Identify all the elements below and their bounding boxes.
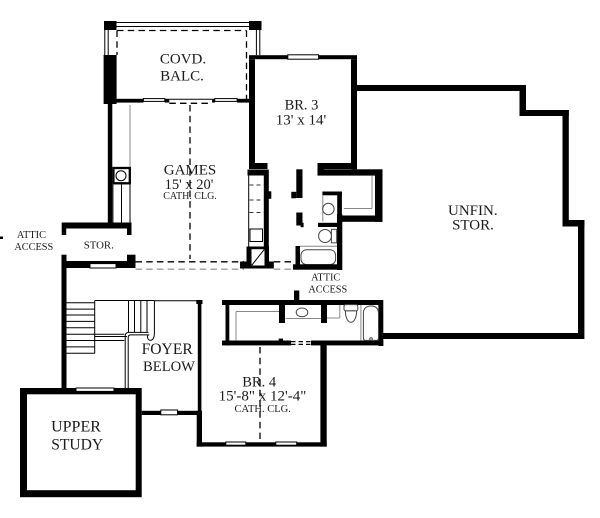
svg-text:STUDY: STUDY (51, 437, 103, 454)
svg-text:ATTIC: ATTIC (311, 273, 340, 284)
svg-text:UNFIN.: UNFIN. (448, 203, 498, 219)
svg-text:COVD.: COVD. (160, 52, 206, 68)
svg-text:CATH. CLG.: CATH. CLG. (235, 404, 291, 415)
svg-text:STOR.: STOR. (84, 239, 114, 251)
svg-text:ATTIC: ATTIC (17, 230, 46, 241)
svg-text:15'-8" x 12'-4": 15'-8" x 12'-4" (219, 388, 307, 404)
svg-text:STOR.: STOR. (452, 218, 494, 234)
svg-text:FOYER: FOYER (142, 341, 194, 358)
svg-text:BALC.: BALC. (160, 69, 204, 85)
svg-text:UPPER: UPPER (51, 419, 101, 436)
svg-text:13' x 14': 13' x 14' (276, 112, 327, 128)
svg-text:BELOW: BELOW (143, 359, 195, 375)
svg-text:CATH. CLG.: CATH. CLG. (163, 191, 217, 202)
svg-text:BR. 3: BR. 3 (285, 97, 319, 113)
svg-text:ACCESS: ACCESS (308, 284, 347, 295)
svg-text:ACCESS: ACCESS (14, 242, 53, 253)
